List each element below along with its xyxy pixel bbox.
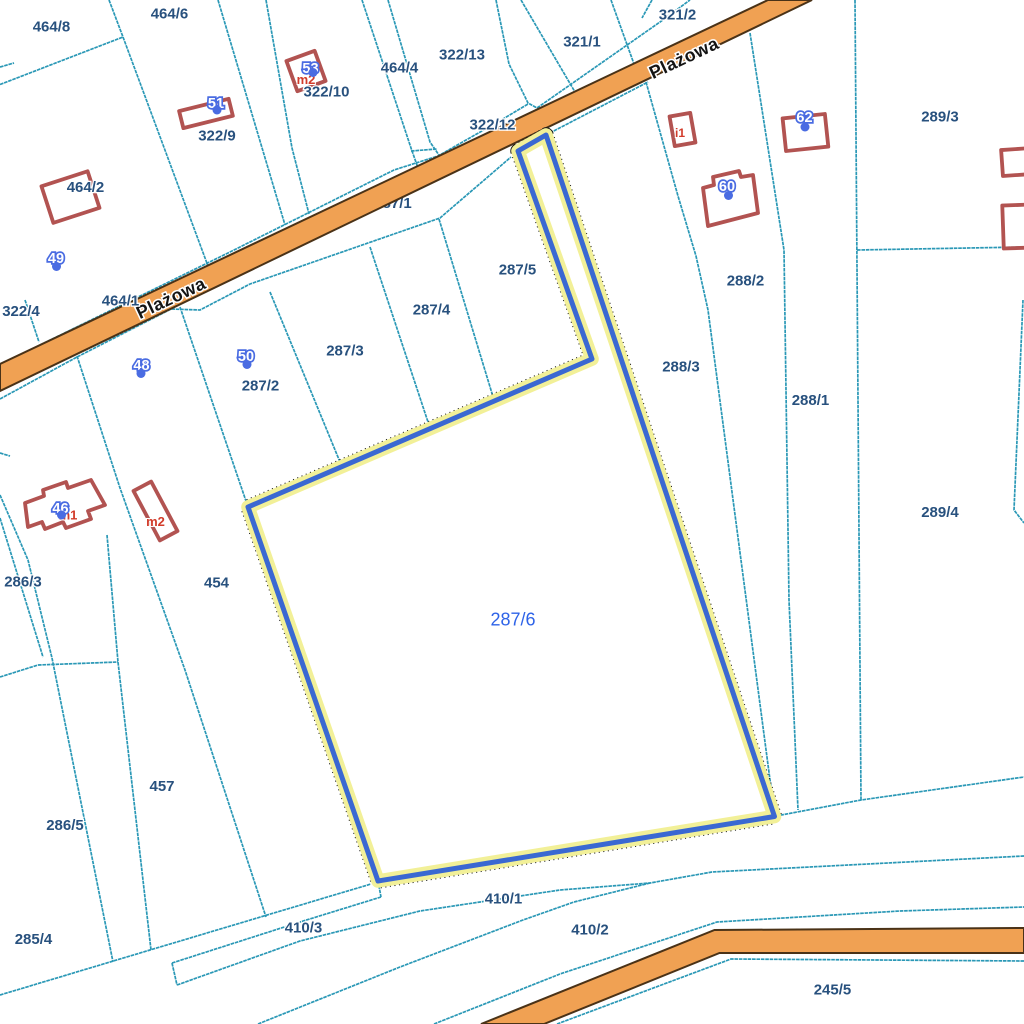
svg-text:289/4: 289/4 [921, 504, 959, 521]
svg-text:288/2: 288/2 [727, 273, 765, 290]
svg-text:287/4: 287/4 [413, 302, 451, 319]
svg-text:287/5: 287/5 [499, 262, 537, 279]
svg-text:321/2: 321/2 [659, 7, 697, 24]
svg-text:287/2: 287/2 [242, 378, 280, 395]
svg-text:286/3: 286/3 [4, 574, 42, 591]
svg-text:464/1: 464/1 [102, 293, 140, 310]
svg-text:m2: m2 [146, 514, 165, 529]
svg-text:287/6: 287/6 [490, 610, 535, 630]
svg-text:288/3: 288/3 [662, 359, 700, 376]
svg-text:i1: i1 [675, 126, 685, 140]
svg-text:322/9: 322/9 [198, 128, 236, 145]
svg-text:322/4: 322/4 [2, 303, 40, 320]
svg-text:454: 454 [204, 575, 230, 592]
svg-text:321/1: 321/1 [563, 34, 601, 51]
svg-text:464/6: 464/6 [151, 6, 189, 23]
svg-text:410/1: 410/1 [485, 891, 523, 908]
svg-text:410/3: 410/3 [285, 920, 323, 937]
svg-text:245/5: 245/5 [814, 982, 852, 999]
svg-text:457: 457 [149, 778, 174, 795]
svg-text:410/2: 410/2 [571, 922, 609, 939]
svg-text:464/4: 464/4 [381, 60, 419, 77]
svg-text:287/3: 287/3 [326, 343, 364, 360]
svg-text:289/3: 289/3 [921, 109, 959, 126]
svg-text:464/2: 464/2 [67, 179, 105, 196]
svg-text:464/8: 464/8 [33, 19, 71, 36]
svg-text:322/12: 322/12 [470, 117, 516, 134]
svg-text:322/13: 322/13 [439, 47, 485, 64]
svg-text:286/5: 286/5 [46, 817, 84, 834]
svg-text:285/4: 285/4 [15, 931, 53, 948]
svg-text:288/1: 288/1 [792, 392, 830, 409]
